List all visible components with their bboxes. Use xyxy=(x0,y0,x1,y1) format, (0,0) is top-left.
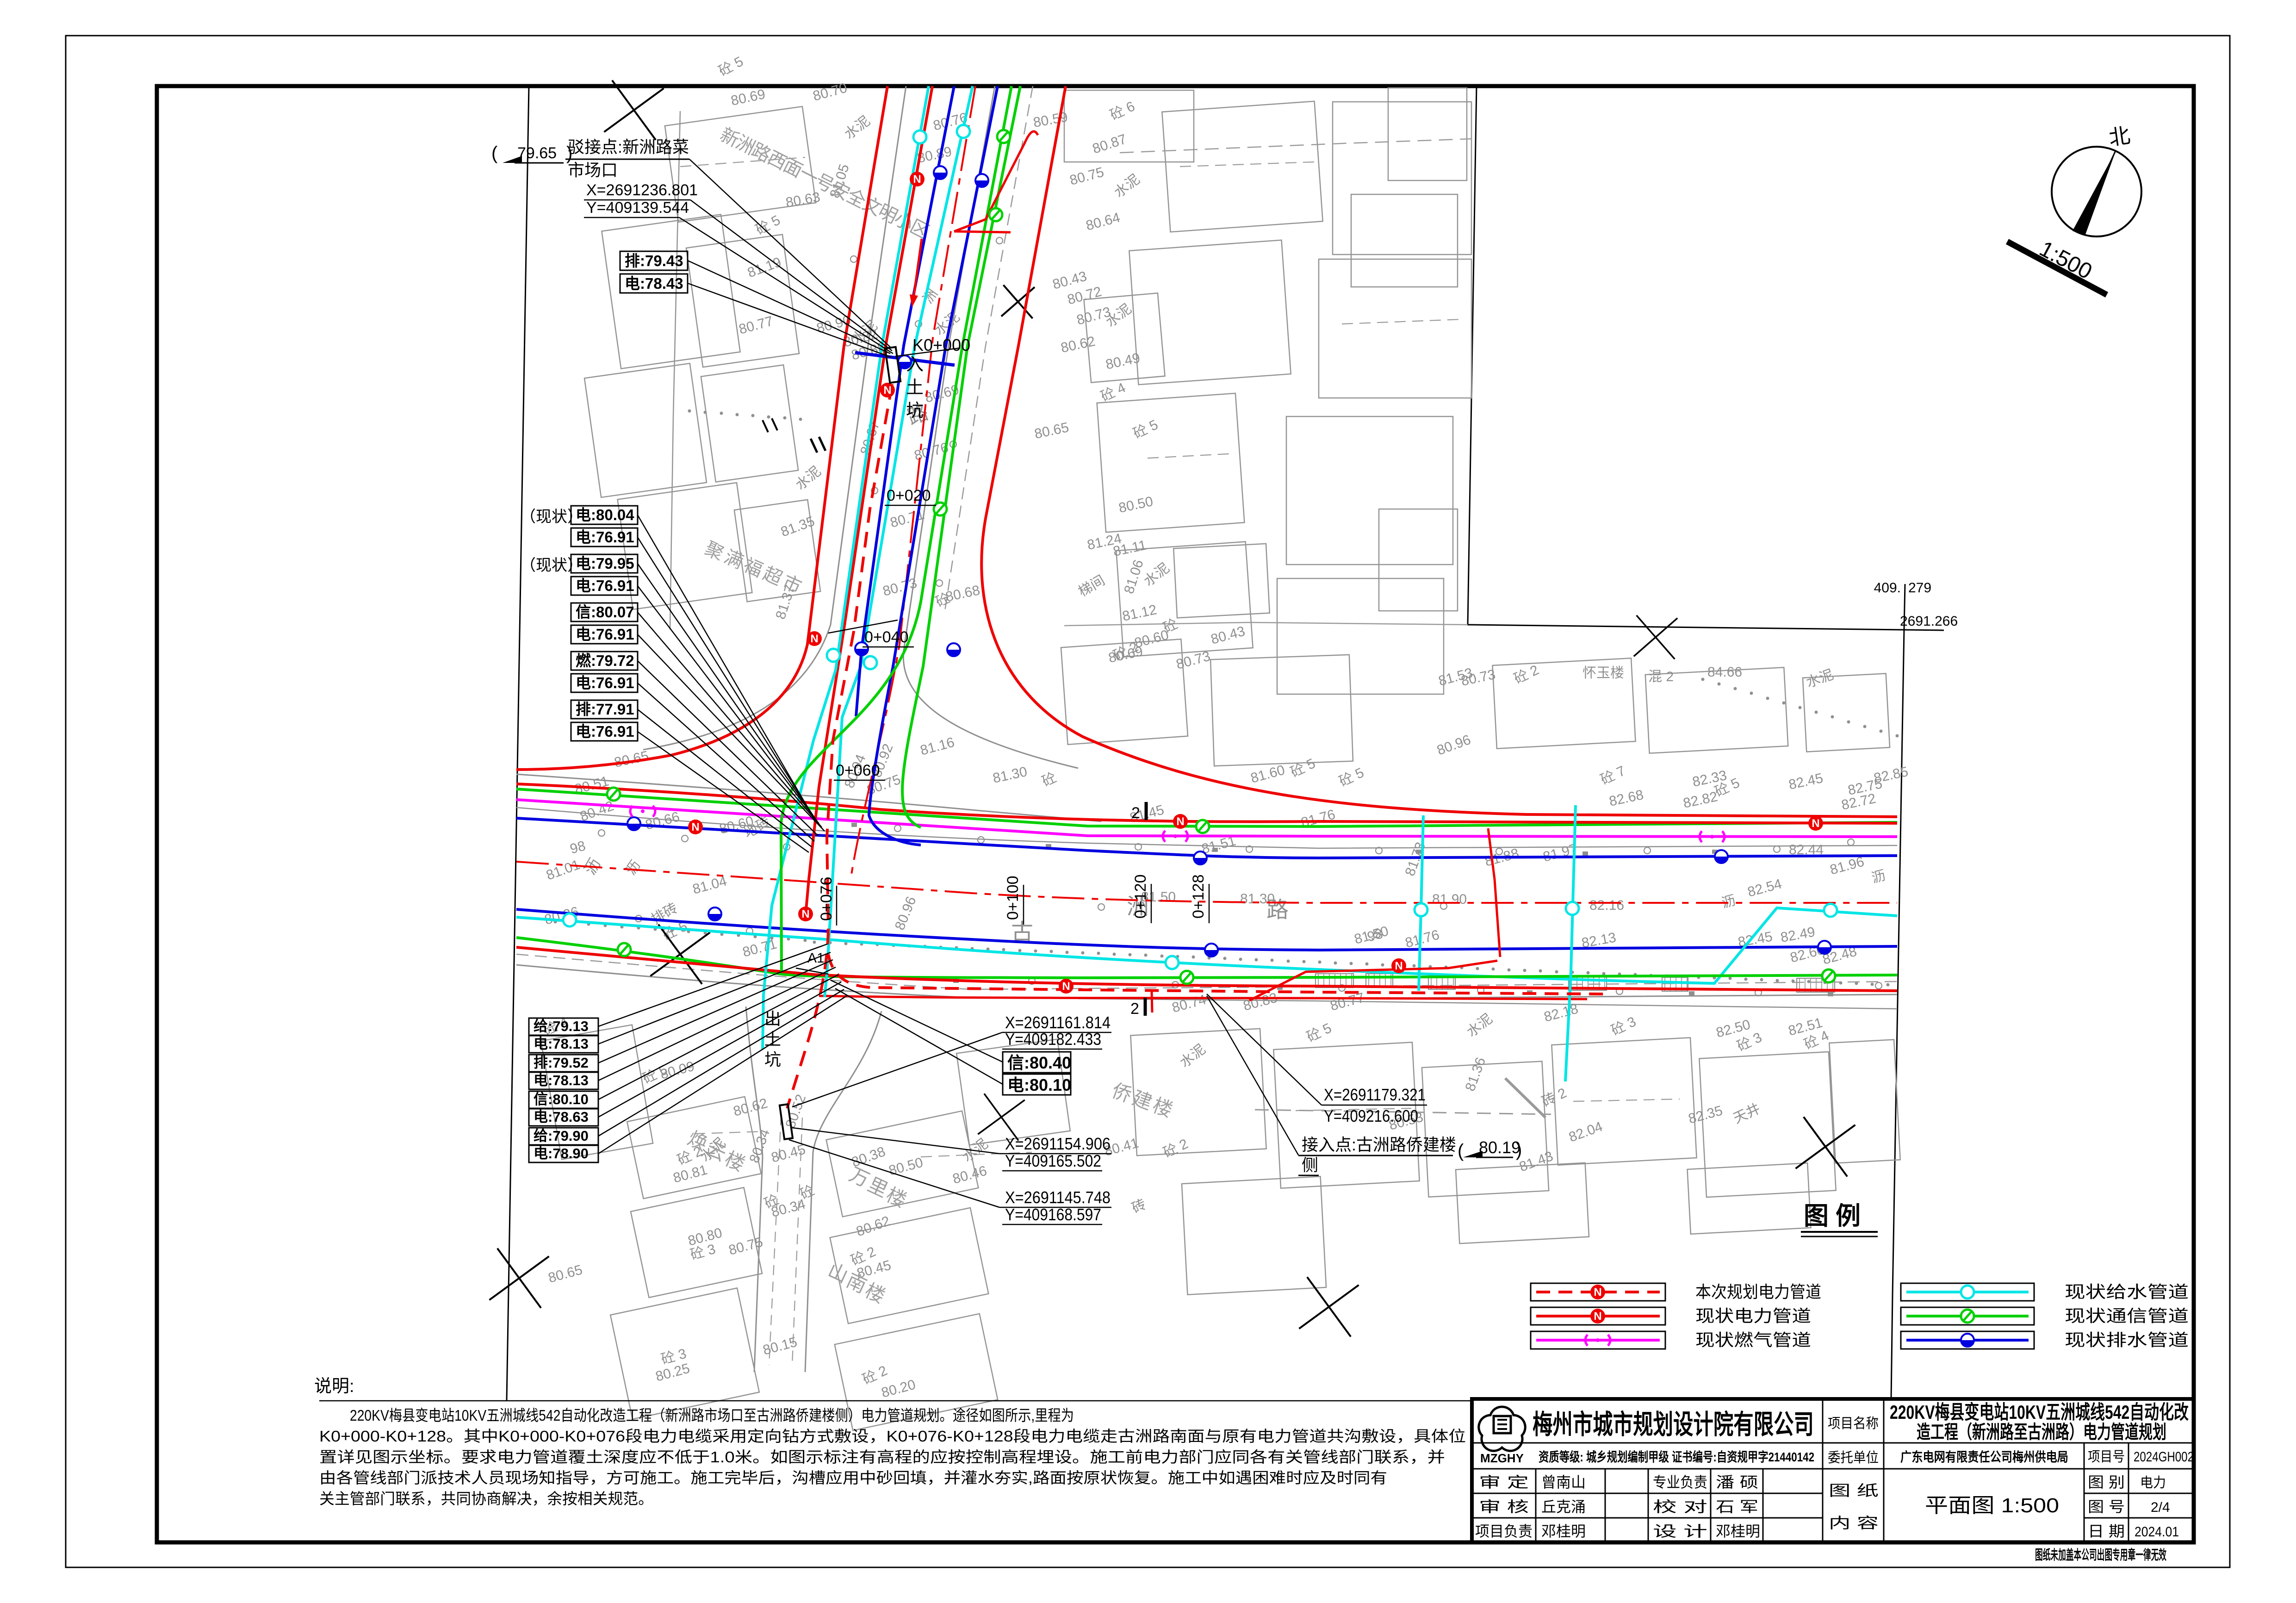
svg-text:由各管线部门派技术人员现场知指导，方可施工。施工完毕后，沟槽: 由各管线部门派技术人员现场知指导，方可施工。施工完毕后，沟槽应用中砂回填，并灌水… xyxy=(319,1469,1387,1486)
svg-text:图 纸: 图 纸 xyxy=(1829,1482,1879,1499)
svg-text:项目负责: 项目负责 xyxy=(1475,1523,1533,1540)
svg-text:N: N xyxy=(1062,980,1070,993)
svg-text:市场口: 市场口 xyxy=(568,161,618,180)
svg-text:怀玉楼: 怀玉楼 xyxy=(1582,665,1624,681)
svg-text:电:79.95: 电:79.95 xyxy=(576,555,634,572)
svg-text:委托单位: 委托单位 xyxy=(1828,1450,1879,1466)
svg-text:日 期: 日 期 xyxy=(2088,1523,2125,1540)
svg-text:信:80.10: 信:80.10 xyxy=(534,1091,589,1107)
svg-text:坑: 坑 xyxy=(906,401,924,421)
svg-text:N: N xyxy=(801,908,809,920)
svg-text:项目名称: 项目名称 xyxy=(1828,1416,1879,1431)
svg-text:81.90: 81.90 xyxy=(1432,892,1467,907)
svg-text:电:78.63: 电:78.63 xyxy=(534,1109,589,1125)
svg-text:关主管部门联系，共同协商解决，余按相关规范。: 关主管部门联系，共同协商解决，余按相关规范。 xyxy=(319,1490,653,1507)
svg-text:混 2: 混 2 xyxy=(1648,669,1674,684)
svg-text:0+060: 0+060 xyxy=(836,762,880,779)
svg-text:曾南山: 曾南山 xyxy=(1541,1474,1586,1491)
svg-text:2691.266: 2691.266 xyxy=(1900,614,1958,629)
svg-text:说明:: 说明: xyxy=(314,1377,354,1396)
svg-text:图 别: 图 别 xyxy=(2088,1474,2125,1491)
svg-text:路: 路 xyxy=(1266,898,1289,922)
svg-text:80.19: 80.19 xyxy=(1479,1138,1520,1157)
svg-text:排:77.91: 排:77.91 xyxy=(576,701,634,718)
svg-text:N: N xyxy=(1594,1310,1601,1323)
svg-text:设 计: 设 计 xyxy=(1653,1523,1707,1540)
svg-text:信:80.07: 信:80.07 xyxy=(576,603,634,621)
svg-text:X=2691145.748: X=2691145.748 xyxy=(1005,1188,1111,1207)
svg-text:0+076: 0+076 xyxy=(818,877,835,921)
svg-text:电:76.91: 电:76.91 xyxy=(576,674,634,691)
svg-text:Y=409139.544: Y=409139.544 xyxy=(586,199,689,217)
svg-text:(: ( xyxy=(1458,1141,1464,1161)
svg-text:X=2691154.906: X=2691154.906 xyxy=(1005,1134,1111,1153)
svg-text:2: 2 xyxy=(1130,1000,1139,1018)
svg-text:接入点:古洲路侨建楼: 接入点:古洲路侨建楼 xyxy=(1302,1135,1456,1154)
svg-text:坑: 坑 xyxy=(764,1050,781,1069)
svg-text:置详见图示坐标。要求电力管道覆土深度应不低于1.0米。如图示: 置详见图示坐标。要求电力管道覆土深度应不低于1.0米。如图示标注有高程的应按控制… xyxy=(319,1448,1445,1466)
svg-text:电:76.91: 电:76.91 xyxy=(576,626,634,643)
svg-text:409.: 409. xyxy=(1874,580,1901,596)
svg-text:X=2691179.321: X=2691179.321 xyxy=(1324,1085,1426,1104)
svg-text:0+020: 0+020 xyxy=(887,487,931,504)
svg-text:专业负责: 专业负责 xyxy=(1653,1474,1707,1491)
svg-text:N: N xyxy=(810,633,818,645)
svg-text:电:76.91: 电:76.91 xyxy=(576,528,634,546)
svg-text:排:79.52: 排:79.52 xyxy=(534,1055,589,1071)
svg-text:82.16: 82.16 xyxy=(1589,898,1624,913)
svg-text:项目号: 项目号 xyxy=(2088,1449,2125,1465)
svg-text:0+100: 0+100 xyxy=(1004,876,1022,920)
svg-text:梅州市城市规划设计院有限公司: 梅州市城市规划设计院有限公司 xyxy=(1533,1410,1814,1440)
svg-text:审 核: 审 核 xyxy=(1479,1498,1529,1515)
svg-text:电:78.13: 电:78.13 xyxy=(534,1072,589,1088)
svg-text:现状燃气管道: 现状燃气管道 xyxy=(1695,1330,1811,1349)
svg-text:K0+000: K0+000 xyxy=(912,336,970,354)
svg-text:N: N xyxy=(691,821,699,833)
svg-text:造工程（新洲路至古洲路）电力管道规划: 造工程（新洲路至古洲路）电力管道规划 xyxy=(1917,1422,2166,1442)
svg-text:279: 279 xyxy=(1908,580,1931,596)
svg-text:图 例: 图 例 xyxy=(1804,1202,1861,1230)
svg-text:现状给水管道: 现状给水管道 xyxy=(2065,1282,2189,1301)
svg-text:2/4: 2/4 xyxy=(2151,1500,2170,1515)
svg-text:本次规划电力管道: 本次规划电力管道 xyxy=(1695,1282,1821,1301)
svg-text:图 号: 图 号 xyxy=(2088,1498,2125,1515)
svg-text:电:76.91: 电:76.91 xyxy=(576,577,634,594)
svg-text:N: N xyxy=(1176,815,1184,828)
svg-text:邓桂明: 邓桂明 xyxy=(1541,1523,1586,1540)
svg-text:石 军: 石 军 xyxy=(1716,1498,1758,1515)
svg-text:电:80.04: 电:80.04 xyxy=(576,506,634,523)
svg-text:电:78.43: 电:78.43 xyxy=(625,275,683,292)
svg-text:N: N xyxy=(1812,817,1819,830)
svg-text:2024GH002: 2024GH002 xyxy=(2134,1449,2194,1465)
svg-text:（现状）: （现状） xyxy=(520,508,583,526)
svg-text:2: 2 xyxy=(1131,804,1140,822)
svg-text:土: 土 xyxy=(906,378,924,398)
svg-text:给:79.90: 给:79.90 xyxy=(534,1128,589,1144)
svg-text:电力: 电力 xyxy=(2140,1475,2166,1491)
svg-text:220KV梅县变电站10KV五洲城线542自动化改: 220KV梅县变电站10KV五洲城线542自动化改 xyxy=(1890,1401,2189,1423)
svg-text:N: N xyxy=(913,173,921,186)
svg-text:2024.01: 2024.01 xyxy=(2135,1524,2179,1540)
svg-text:Y=409182.433: Y=409182.433 xyxy=(1005,1030,1101,1049)
svg-text:丘克涌: 丘克涌 xyxy=(1541,1498,1586,1515)
svg-text:资质等级: 城乡规划编制甲级 证书编号:自资规甲字21440: 资质等级: 城乡规划编制甲级 证书编号:自资规甲字21440142 xyxy=(1539,1449,1814,1464)
svg-text:现状排水管道: 现状排水管道 xyxy=(2065,1330,2189,1349)
svg-text:给:79.13: 给:79.13 xyxy=(534,1018,589,1034)
svg-text:X=2691236.801: X=2691236.801 xyxy=(586,181,698,199)
svg-text:79.65: 79.65 xyxy=(517,144,557,162)
svg-text:电:80.10: 电:80.10 xyxy=(1007,1075,1071,1094)
svg-text:现状电力管道: 现状电力管道 xyxy=(1695,1306,1811,1325)
svg-text:北: 北 xyxy=(2107,123,2132,150)
svg-text:信:80.40: 信:80.40 xyxy=(1007,1053,1071,1072)
svg-text:K0+000-K0+128。其中K0+000-K0+076段: K0+000-K0+128。其中K0+000-K0+076段电力电缆采用定向钻方… xyxy=(319,1428,1466,1445)
svg-text:燃:79.72: 燃:79.72 xyxy=(576,652,634,669)
svg-text:X=2691161.814: X=2691161.814 xyxy=(1005,1013,1111,1032)
svg-text:MZGHY: MZGHY xyxy=(1480,1451,1524,1465)
svg-text:Y=409216.600: Y=409216.600 xyxy=(1324,1106,1418,1125)
svg-text:驳接点:新洲路菜: 驳接点:新洲路菜 xyxy=(568,137,689,156)
svg-text:84.66: 84.66 xyxy=(1707,665,1742,680)
svg-text:Y=409165.502: Y=409165.502 xyxy=(1005,1151,1101,1170)
svg-text:广东电网有限责任公司梅州供电局: 广东电网有限责任公司梅州供电局 xyxy=(1900,1449,2068,1464)
svg-text:N: N xyxy=(1594,1286,1601,1299)
svg-text:现状通信管道: 现状通信管道 xyxy=(2065,1306,2189,1325)
svg-text:0+120: 0+120 xyxy=(1132,875,1149,919)
svg-text:电:78.90: 电:78.90 xyxy=(534,1145,589,1162)
svg-text:邓桂明: 邓桂明 xyxy=(1716,1523,1760,1540)
svg-text:N: N xyxy=(1395,960,1402,972)
svg-text:审 定: 审 定 xyxy=(1479,1474,1529,1491)
svg-text:0+040: 0+040 xyxy=(864,628,909,646)
svg-text:入: 入 xyxy=(906,355,924,374)
svg-text:校 对: 校 对 xyxy=(1653,1498,1707,1515)
svg-text:0+128: 0+128 xyxy=(1190,875,1207,919)
svg-text:N: N xyxy=(883,384,891,397)
svg-text:图纸未加盖本公司出图专用章一律无效: 图纸未加盖本公司出图专用章一律无效 xyxy=(2035,1547,2166,1563)
svg-text:): ) xyxy=(1516,1140,1522,1160)
svg-text:220KV梅县变电站10KV五洲城线542自动化改造工程（新: 220KV梅县变电站10KV五洲城线542自动化改造工程（新洲路市场口至古洲路侨… xyxy=(350,1407,1074,1424)
svg-text:电:78.13: 电:78.13 xyxy=(534,1036,589,1052)
svg-text:Y=409168.597: Y=409168.597 xyxy=(1005,1205,1101,1224)
svg-text:电:76.91: 电:76.91 xyxy=(576,723,634,740)
svg-text:侧: 侧 xyxy=(1302,1156,1318,1174)
svg-text:内 容: 内 容 xyxy=(1829,1515,1879,1531)
svg-text:平面图 1:500: 平面图 1:500 xyxy=(1925,1494,2059,1517)
svg-text:(: ( xyxy=(491,143,498,163)
svg-text:潘 硕: 潘 硕 xyxy=(1716,1474,1758,1491)
svg-text:排:79.43: 排:79.43 xyxy=(625,252,683,269)
svg-text:（现状）: （现状） xyxy=(520,557,583,574)
